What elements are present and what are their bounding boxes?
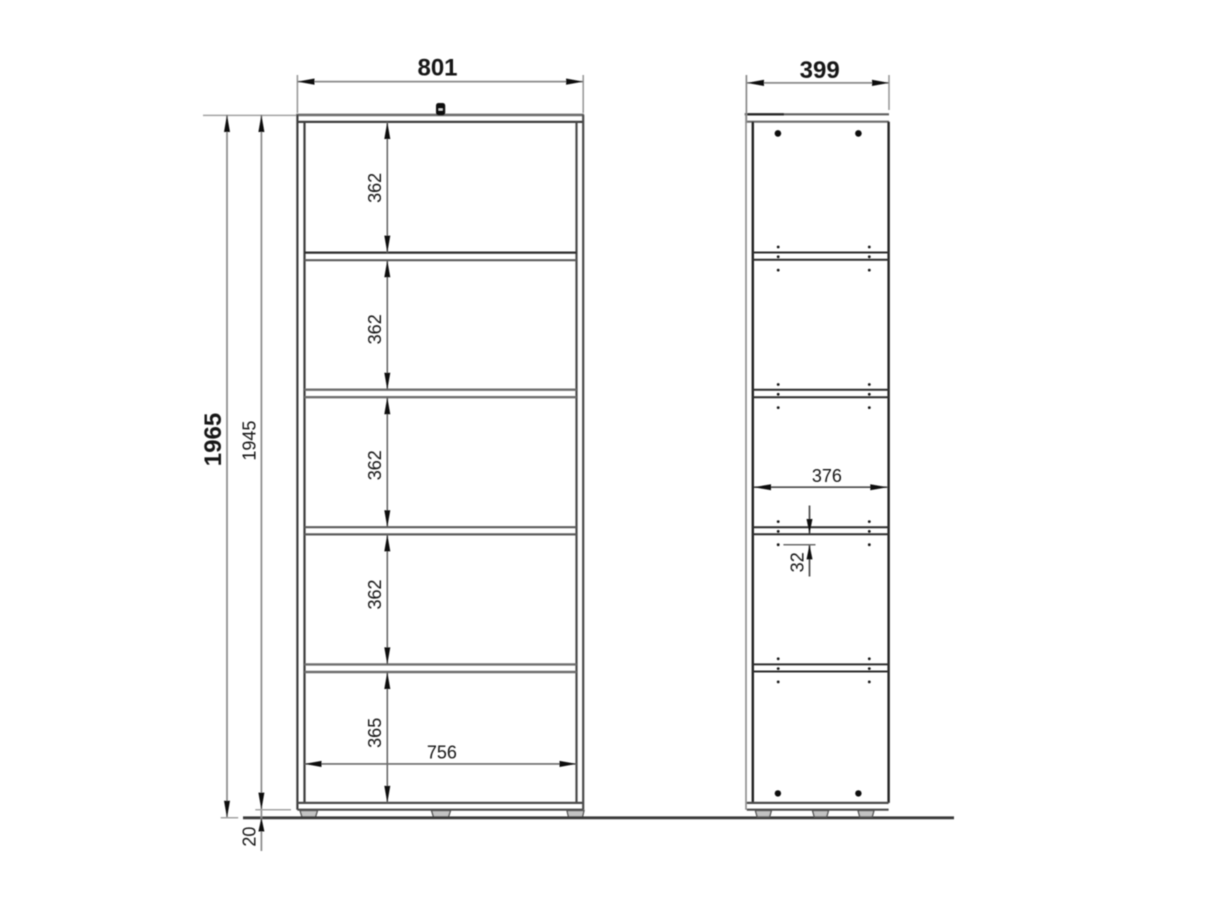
svg-text:365: 365 <box>365 718 385 748</box>
svg-text:32: 32 <box>787 552 807 572</box>
svg-text:376: 376 <box>812 466 842 486</box>
svg-text:1965: 1965 <box>200 413 227 466</box>
svg-text:1945: 1945 <box>239 421 259 461</box>
svg-text:801: 801 <box>417 54 457 81</box>
svg-text:362: 362 <box>365 579 385 609</box>
svg-text:362: 362 <box>365 173 385 203</box>
svg-text:362: 362 <box>365 450 385 480</box>
svg-text:362: 362 <box>365 314 385 344</box>
svg-text:20: 20 <box>239 827 259 847</box>
svg-text:756: 756 <box>427 743 457 763</box>
svg-text:399: 399 <box>800 57 840 84</box>
